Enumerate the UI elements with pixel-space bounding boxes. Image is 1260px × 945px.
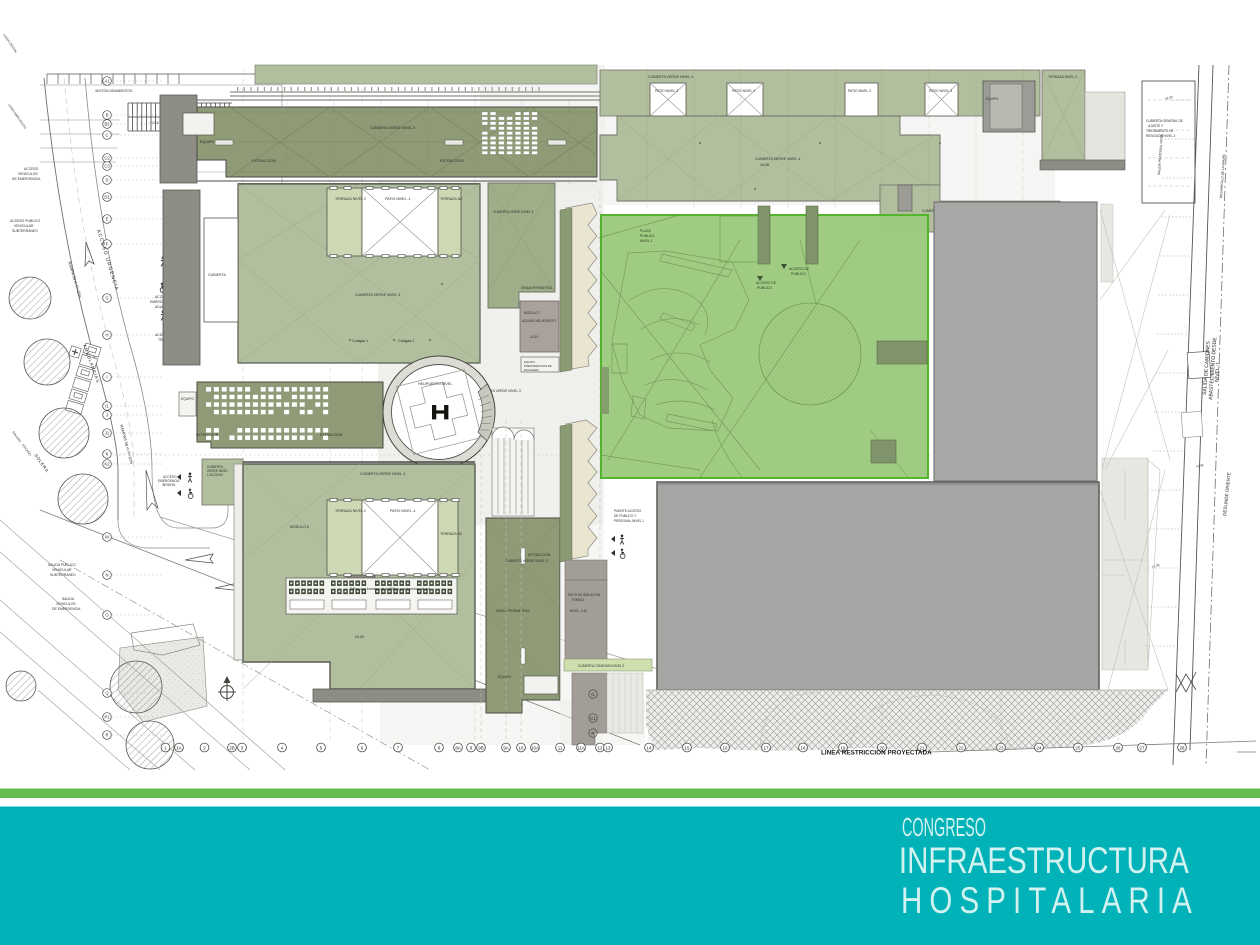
svg-text:CUBIERTA VERDE NIVEL 4: CUBIERTA VERDE NIVEL 4 xyxy=(360,472,405,476)
svg-text:1 ACCESO: 1 ACCESO xyxy=(207,473,223,477)
svg-text:M: M xyxy=(105,535,109,540)
svg-text:J1: J1 xyxy=(105,431,110,436)
svg-text:PATIO NIVEL 3: PATIO NIVEL 3 xyxy=(655,89,678,93)
svg-text:TERRAZA NIVEL 2: TERRAZA NIVEL 2 xyxy=(335,197,366,201)
svg-text:13: 13 xyxy=(606,745,611,750)
svg-text:K: K xyxy=(106,452,109,457)
svg-text:J: J xyxy=(106,413,108,418)
svg-text:PERSONAL NIVEL 1: PERSONAL NIVEL 1 xyxy=(614,519,644,523)
svg-text:24.00: 24.00 xyxy=(355,635,364,639)
svg-text:17: 17 xyxy=(764,745,769,750)
svg-text:ESCALERA: ESCALERA xyxy=(524,368,539,372)
svg-text:CUBIERTA VERDE NIVEL 5: CUBIERTA VERDE NIVEL 5 xyxy=(370,126,415,130)
svg-text:SALIDA: SALIDA xyxy=(62,597,75,601)
svg-text:2B: 2B xyxy=(229,745,234,750)
svg-text:CUBIERTA VERDE NIVEL 4: CUBIERTA VERDE NIVEL 4 xyxy=(648,75,693,79)
svg-text:C3: C3 xyxy=(104,164,110,169)
svg-text:CUBIERTA GENERAL DE: CUBIERTA GENERAL DE xyxy=(1146,119,1183,123)
svg-text:PATIO NIVEL 3: PATIO NIVEL 3 xyxy=(929,89,952,93)
svg-text:15: 15 xyxy=(685,745,690,750)
svg-text:9A: 9A xyxy=(503,745,508,750)
svg-text:PATIO NIVEL 3: PATIO NIVEL 3 xyxy=(732,89,755,93)
svg-text:16.06: 16.06 xyxy=(760,163,769,167)
svg-text:B2: B2 xyxy=(104,122,110,127)
svg-text:EQUIPO: EQUIPO xyxy=(181,397,195,401)
svg-text:LINEA RESTRICCION PROYECTADA: LINEA RESTRICCION PROYECTADA xyxy=(821,750,932,757)
svg-text:16.30: 16.30 xyxy=(530,335,538,339)
svg-text:D: D xyxy=(105,178,108,183)
svg-text:D1: D1 xyxy=(104,195,110,200)
svg-text:12: 12 xyxy=(598,745,603,750)
svg-text:C: C xyxy=(105,133,108,138)
svg-text:A1: A1 xyxy=(104,79,110,84)
svg-text:ACCESO DE: ACCESO DE xyxy=(789,267,810,271)
svg-text:EXTRACCION: EXTRACCION xyxy=(320,433,343,437)
svg-text:8A: 8A xyxy=(455,745,460,750)
svg-text:EXTRACCION: EXTRACCION xyxy=(440,159,464,163)
svg-text:EQUIPO: EQUIPO xyxy=(986,97,999,101)
svg-text:11: 11 xyxy=(558,745,563,750)
svg-text:DE EMERGENCIA: DE EMERGENCIA xyxy=(52,607,81,611)
svg-text:PLAZA: PLAZA xyxy=(640,229,651,233)
svg-text:DE EMERGENCIA: DE EMERGENCIA xyxy=(12,177,41,181)
svg-text:MODULO 7: MODULO 7 xyxy=(524,311,541,315)
svg-text:I: I xyxy=(106,375,107,380)
svg-text:VEHICULAR: VEHICULAR xyxy=(52,568,72,572)
svg-text:INFANTIL: INFANTIL xyxy=(162,483,176,487)
svg-text:PATIO NIVEL 2: PATIO NIVEL 2 xyxy=(848,89,871,93)
svg-text:Rifles con bombas de sol: Rifles con bombas de sol xyxy=(390,587,430,591)
svg-text:27: 27 xyxy=(1140,745,1145,750)
svg-text:TERRAZA NIVEL 2: TERRAZA NIVEL 2 xyxy=(335,509,366,513)
svg-text:EXTRACCION: EXTRACCION xyxy=(528,553,551,557)
svg-text:CUBIERTA: CUBIERTA xyxy=(208,273,226,277)
svg-text:G: G xyxy=(105,296,108,301)
svg-text:VEHICULAR: VEHICULAR xyxy=(14,224,34,228)
svg-text:EQUIPO: EQUIPO xyxy=(498,675,512,679)
svg-text:Rifles con bombas de sol: Rifles con bombas de sol xyxy=(350,587,390,591)
svg-text:AJUSTE Y: AJUSTE Y xyxy=(1148,124,1164,128)
svg-text:FONICA: FONICA xyxy=(572,598,585,602)
svg-text:ACCESO: ACCESO xyxy=(24,167,39,171)
svg-text:Cuelgas 1: Cuelgas 1 xyxy=(352,339,368,343)
svg-text:24: 24 xyxy=(1037,745,1042,750)
svg-text:HOSPITALARIA: HOSPITALARIA xyxy=(901,881,1199,922)
svg-text:G: G xyxy=(591,692,595,697)
svg-text:EXTRACCION: EXTRACCION xyxy=(196,433,219,437)
svg-text:PUBLICA: PUBLICA xyxy=(640,234,655,238)
svg-text:10: 10 xyxy=(519,745,524,750)
svg-text:SUBTERRANEO: SUBTERRANEO xyxy=(12,229,38,233)
svg-text:PATIO NIVEL -1: PATIO NIVEL -1 xyxy=(385,197,411,201)
svg-text:TRATAMIENTO DE: TRATAMIENTO DE xyxy=(1146,129,1174,133)
svg-text:CUBIERTA CONEXION NIVEL 2: CUBIERTA CONEXION NIVEL 2 xyxy=(578,664,624,668)
svg-text:CUBIERTA VERDE NIVEL 2: CUBIERTA VERDE NIVEL 2 xyxy=(505,559,548,563)
svg-text:10A: 10A xyxy=(531,745,539,750)
svg-text:22: 22 xyxy=(959,745,964,750)
svg-text:GRAVA PERIMETRAL: GRAVA PERIMETRAL xyxy=(521,286,553,290)
svg-text:SALIDA PUBLICO: SALIDA PUBLICO xyxy=(48,563,76,567)
svg-text:CUBIERTA VERDE NIVEL 3: CUBIERTA VERDE NIVEL 3 xyxy=(355,293,400,297)
svg-text:VEHICULOS: VEHICULOS xyxy=(18,172,38,176)
svg-text:B: B xyxy=(106,113,109,118)
svg-text:9B: 9B xyxy=(478,745,483,750)
svg-text:TERRAZA N2: TERRAZA N2 xyxy=(440,197,462,201)
svg-text:23: 23 xyxy=(999,745,1004,750)
svg-text:PUENTE ACCESO: PUENTE ACCESO xyxy=(614,509,642,513)
svg-text:CUBIERTA VERDE NIVEL 4: CUBIERTA VERDE NIVEL 4 xyxy=(755,157,800,161)
svg-text:PATIO NIVEL -1: PATIO NIVEL -1 xyxy=(390,509,416,513)
svg-text:26: 26 xyxy=(1116,745,1121,750)
svg-text:PUBLICO: PUBLICO xyxy=(791,272,806,276)
svg-text:PATIO DE AISLACION: PATIO DE AISLACION xyxy=(568,593,601,597)
svg-text:P1: P1 xyxy=(104,715,110,720)
svg-text:18: 18 xyxy=(801,745,806,750)
svg-text:1A: 1A xyxy=(176,745,181,750)
svg-text:NIVEL 1: NIVEL 1 xyxy=(640,239,653,243)
svg-text:E: E xyxy=(106,217,109,222)
svg-text:SUBTERRANEO: SUBTERRANEO xyxy=(50,573,76,577)
svg-text:PUBLICO: PUBLICO xyxy=(757,286,772,290)
svg-text:25: 25 xyxy=(1076,745,1081,750)
svg-text:ACCESO DE: ACCESO DE xyxy=(756,281,777,285)
svg-text:+13.6: +13.6 xyxy=(150,121,159,125)
svg-text:11A: 11A xyxy=(577,745,585,750)
svg-text:ACCESO PUBLICO: ACCESO PUBLICO xyxy=(10,219,41,223)
svg-text:INFRAESTRUCTURA: INFRAESTRUCTURA xyxy=(899,841,1189,882)
svg-text:EXTRACCION: EXTRACCION xyxy=(252,159,276,163)
svg-text:C1: C1 xyxy=(590,716,596,721)
svg-text:K2: K2 xyxy=(104,462,110,467)
svg-text:16: 16 xyxy=(723,745,728,750)
svg-text:H: H xyxy=(105,333,108,338)
svg-text:VEHICULOS: VEHICULOS xyxy=(56,602,76,606)
svg-text:MODULO 6: MODULO 6 xyxy=(290,525,309,529)
svg-text:CUBIERTA VERDE NIVEL 3: CUBIERTA VERDE NIVEL 3 xyxy=(493,210,533,214)
svg-text:DE PUBLICO Y: DE PUBLICO Y xyxy=(614,514,637,518)
svg-text:HELIPUERTO NIVEL: HELIPUERTO NIVEL xyxy=(418,382,452,386)
svg-text:C2: C2 xyxy=(104,156,110,161)
svg-text:Cuelgas 2: Cuelgas 2 xyxy=(398,339,414,343)
svg-text:28: 28 xyxy=(1180,745,1185,750)
svg-text:N: N xyxy=(105,573,108,578)
svg-text:NIVEL -3.20: NIVEL -3.20 xyxy=(570,609,587,613)
svg-text:GRAVA PERIMETRAL: GRAVA PERIMETRAL xyxy=(496,609,530,613)
svg-text:14: 14 xyxy=(647,745,652,750)
svg-text:TERRAZA N2: TERRAZA N2 xyxy=(440,532,462,536)
svg-text:CONGRESO: CONGRESO xyxy=(902,814,986,842)
svg-text:EQUIPO: EQUIPO xyxy=(200,140,214,144)
svg-text:36 ESTACIONAMIENTOS: 36 ESTACIONAMIENTOS xyxy=(95,89,132,93)
svg-text:R: R xyxy=(105,733,108,738)
svg-text:TERRAZA NIVEL 3: TERRAZA NIVEL 3 xyxy=(1048,75,1077,79)
svg-text:AGUJAS HELIPUERTO: AGUJAS HELIPUERTO xyxy=(522,319,556,323)
